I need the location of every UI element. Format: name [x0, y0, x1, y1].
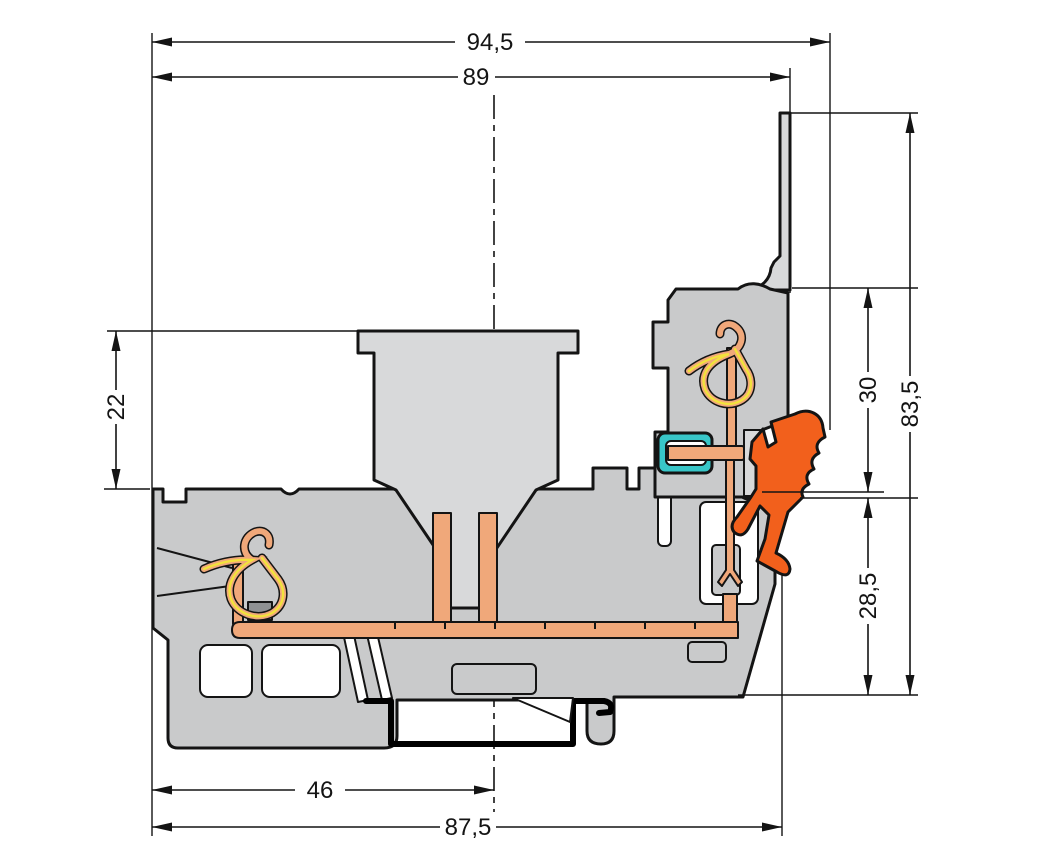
dim-label-housing-width: 87,5: [445, 814, 492, 841]
dimension-actuator-height: 22: [103, 331, 130, 489]
technical-drawing-page: 94,5 89 22 30 83,5 28,5: [0, 0, 1063, 868]
dimension-base-width: 46: [152, 777, 494, 804]
busbar-riser-center-right: [479, 513, 497, 625]
foot-cavity-left: [200, 645, 252, 697]
busbar-riser-center-left: [433, 513, 451, 625]
terminal-block-drawing: 94,5 89 22 30 83,5 28,5: [0, 0, 1063, 868]
foot-cavity-right: [262, 645, 340, 697]
dimension-housing-width: 87,5: [152, 814, 782, 841]
dim-label-total-height: 83,5: [897, 381, 924, 428]
dimension-total-height: 83,5: [897, 113, 924, 695]
dim-label-flange-width: 89: [463, 64, 490, 91]
busbar-main: [232, 622, 738, 638]
dim-label-upper-height: 30: [855, 377, 882, 404]
din-rail: [366, 701, 611, 744]
dimension-overall-width: 94,5: [152, 29, 830, 56]
dim-label-actuator-height: 22: [103, 394, 130, 421]
dimension-lower-height: 28,5: [855, 498, 882, 695]
dim-label-lower-height: 28,5: [855, 573, 882, 620]
dimension-upper-height: 30: [855, 288, 882, 492]
dim-label-base-width: 46: [307, 777, 334, 804]
rail-catch-wedge: [513, 698, 573, 722]
dim-label-overall-width: 94,5: [467, 29, 514, 56]
marker-flange: [752, 113, 790, 290]
dimension-flange-width: 89: [152, 64, 790, 91]
